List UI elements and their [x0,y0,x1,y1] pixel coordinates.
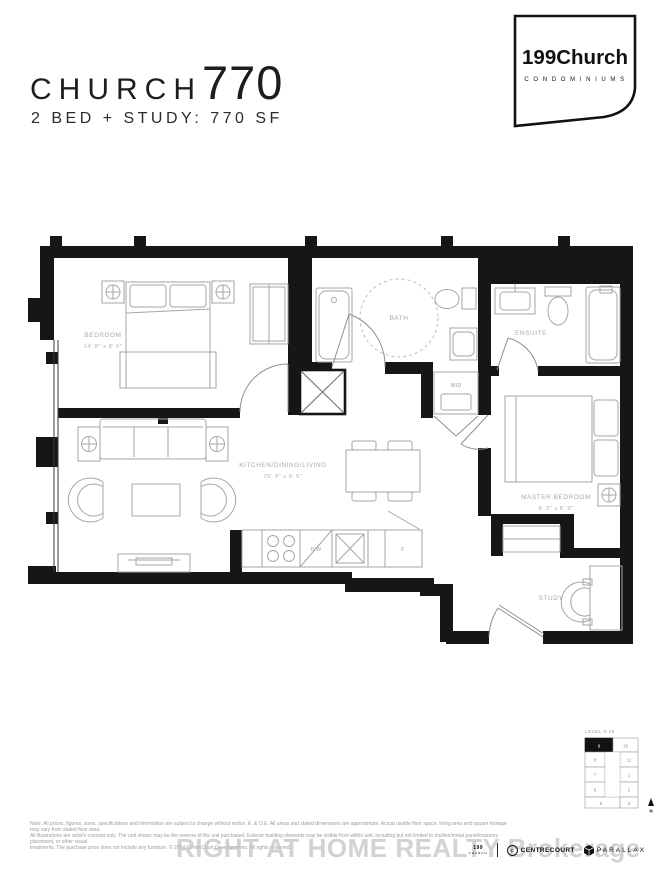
master-door-arc [461,444,488,449]
logo-divider [497,843,498,857]
bedroom-door-arc [240,364,288,412]
master-label: MASTER BEDROOM [521,494,591,501]
dishwasher-label: D/W [311,547,322,553]
bedroom-dims: 14' 8" x 8' 0" [84,344,123,350]
keyplate-num-11: 11 [627,758,632,763]
centrecourt-logo: C CENTRECOURT [507,845,575,856]
keyplate: LEVEL 6-19 9 10 8 11 7 1 6 2 5 3 N [585,729,654,814]
bedroom-furniture [102,281,288,388]
fridge-label: F [401,547,404,553]
entry-door-arc [489,608,498,637]
parallax-cube-icon [584,845,594,856]
parallax-logo: PARALLAX [584,845,646,856]
shaft [300,370,345,414]
floor-plan: BEDROOM 14' 8" x 8' 0" KITCHEN/DINING/LI… [0,0,672,870]
washer-dryer [434,372,478,436]
wd-label: W/D [451,383,462,389]
centrecourt-icon: C [507,845,518,856]
dining-furniture [346,441,420,501]
ensuite-door-arc [508,338,538,370]
walls [28,236,633,644]
bath-label: BATH [390,315,409,322]
199church-footer-logo: 199 CHURCH [469,846,488,855]
kitchen-label: KITCHEN/DINING/LIVING [239,462,327,469]
keyplate-num-10: 10 [623,744,628,749]
north-label: N [649,809,652,814]
keyplate-core [605,752,620,797]
floorplan-page: { "header": { "title_church": "CHURCH", … [0,0,672,870]
kitchen-counter [242,511,422,567]
study-label: STUDY [539,595,564,602]
living-furniture [68,419,235,572]
bedroom-label: BEDROOM [84,332,121,339]
ensuite-fixtures [495,284,620,363]
entry-door-leaf [498,608,543,637]
keyplate-level-label: LEVEL 6-19 [585,729,615,735]
footer-logos: 199 CHURCH C CENTRECOURT PARALLAX [469,843,646,857]
keyplate-unit-5 [585,797,620,808]
disclaimer-line-1: Note: All prices, figures, sizes, specif… [30,821,510,833]
north-arrow-icon [648,798,654,806]
ensuite-door-leaf [497,338,508,370]
study-furniture [561,566,622,630]
master-dims: 8' 3" x 8' 9" [538,506,573,512]
kitchen-dims: 25' 9" x 9' 6" [264,474,303,480]
ensuite-label: ENSUITE [515,330,547,337]
entry-door-leaf2 [499,605,544,634]
